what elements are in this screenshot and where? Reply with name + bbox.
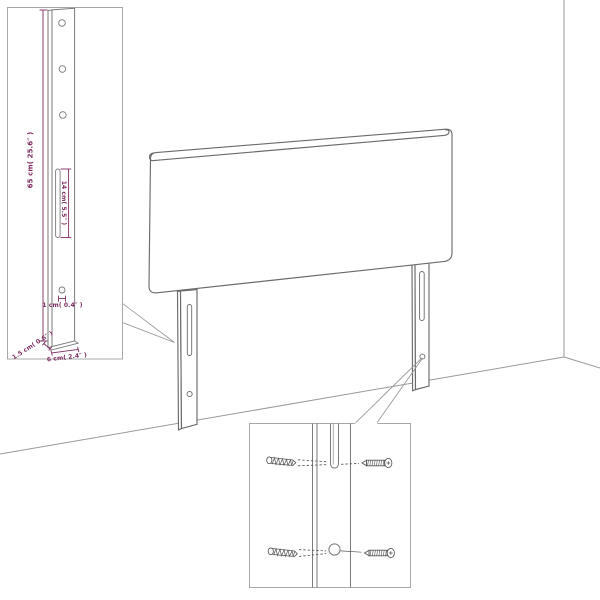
post-hole-1	[59, 20, 66, 27]
post-small-hole	[59, 287, 65, 293]
headboard-assembly-diagram: 65 cm( 25.6″ ) 14 cm( 5.5″ ) 1 cm( 0.4″ …	[0, 0, 600, 600]
post-hole-3	[60, 112, 67, 119]
left-leg-slot	[187, 305, 191, 356]
left-leg-hole	[187, 391, 192, 396]
diagram-line-art	[0, 0, 600, 600]
headboard-panel	[149, 129, 452, 293]
post-hole-2	[59, 66, 66, 73]
headboard	[149, 129, 452, 430]
section-hole	[329, 544, 340, 555]
headboard-left-leg	[178, 290, 198, 431]
callout-lines-left-inset	[123, 304, 175, 343]
dim-label-hole-size: 1 cm( 0.4″ )	[42, 303, 82, 309]
screw-side-view-top	[362, 458, 392, 467]
floor-line-right	[564, 357, 600, 368]
right-leg-slot	[420, 272, 425, 321]
headboard-right-leg	[412, 262, 429, 391]
detail-inset-screws	[250, 424, 411, 588]
dim-label-slot-length: 14 cm( 5.5″ )	[60, 181, 66, 226]
dim-label-post-height: 65 cm( 25.6″ )	[28, 132, 35, 189]
screw-side-view-bottom	[365, 548, 395, 557]
